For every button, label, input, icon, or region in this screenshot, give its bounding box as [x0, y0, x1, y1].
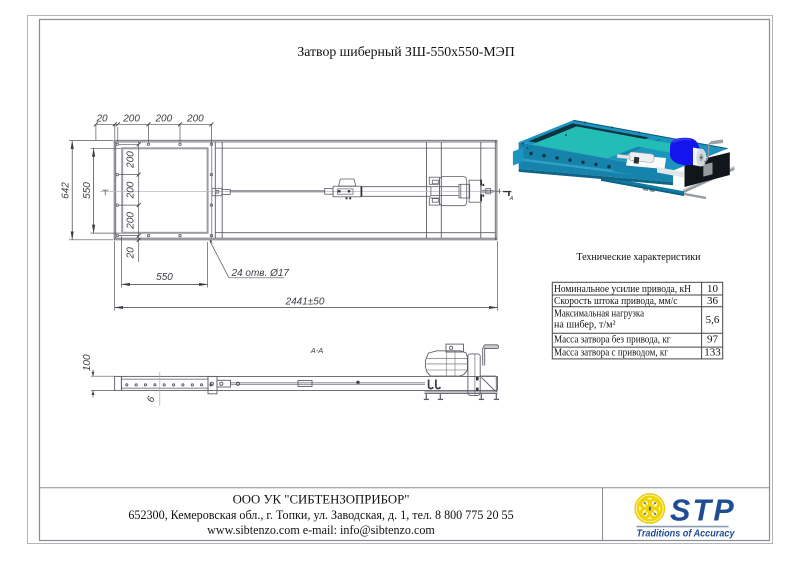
- svg-text:Скорость штока привода, мм/с: Скорость штока привода, мм/с: [554, 296, 678, 307]
- svg-text:20: 20: [95, 114, 108, 125]
- svg-text:Масса затвора с приводом, кг: Масса затвора с приводом, кг: [554, 348, 669, 359]
- svg-text:www.sibtenzo.com e-mail: info@: www.sibtenzo.com e-mail: info@sibtenzo.c…: [207, 523, 435, 537]
- svg-text:Номинальное усилие привода, кН: Номинальное усилие привода, кН: [554, 284, 691, 295]
- svg-text:100: 100: [82, 354, 93, 371]
- svg-text:24 отв. Ø17: 24 отв. Ø17: [231, 268, 290, 279]
- svg-text:6: 6: [145, 395, 157, 404]
- svg-text:А: А: [509, 196, 514, 202]
- svg-text:Максимальная нагрузка: Максимальная нагрузка: [554, 309, 644, 320]
- svg-text:5,6: 5,6: [706, 314, 720, 326]
- svg-text:550: 550: [156, 272, 173, 283]
- svg-text:133: 133: [704, 347, 721, 359]
- svg-text:Затвор шиберный ЗШ-550х550-МЭП: Затвор шиберный ЗШ-550х550-МЭП: [297, 44, 514, 59]
- svg-text:652300, Кемеровская обл., г. Т: 652300, Кемеровская обл., г. Топки, ул. …: [128, 508, 513, 522]
- svg-text:Масса затвора без привода, кг: Масса затвора без привода, кг: [554, 335, 671, 346]
- svg-text:97: 97: [707, 334, 719, 346]
- svg-text:ООО УК "СИБТЕНЗОПРИБОР": ООО УК "СИБТЕНЗОПРИБОР": [233, 493, 410, 507]
- svg-text:200: 200: [126, 151, 137, 169]
- svg-text:STP: STP: [670, 494, 736, 528]
- svg-text:642: 642: [61, 182, 72, 199]
- svg-text:200: 200: [122, 114, 140, 125]
- svg-text:200: 200: [154, 114, 172, 125]
- svg-text:на шибер, т/м²: на шибер, т/м²: [554, 320, 616, 331]
- svg-text:200: 200: [126, 181, 137, 199]
- svg-text:А-А: А-А: [310, 346, 324, 355]
- svg-text:Traditions of Accuracy: Traditions of Accuracy: [637, 528, 736, 540]
- svg-text:20: 20: [126, 247, 137, 260]
- svg-text:200: 200: [186, 114, 204, 125]
- svg-text:550: 550: [82, 182, 93, 199]
- svg-text:Технические характеристики: Технические характеристики: [576, 252, 701, 263]
- svg-text:10: 10: [707, 283, 719, 295]
- svg-text:2441±50: 2441±50: [285, 296, 325, 307]
- svg-text:36: 36: [707, 295, 719, 307]
- svg-text:200: 200: [126, 212, 137, 230]
